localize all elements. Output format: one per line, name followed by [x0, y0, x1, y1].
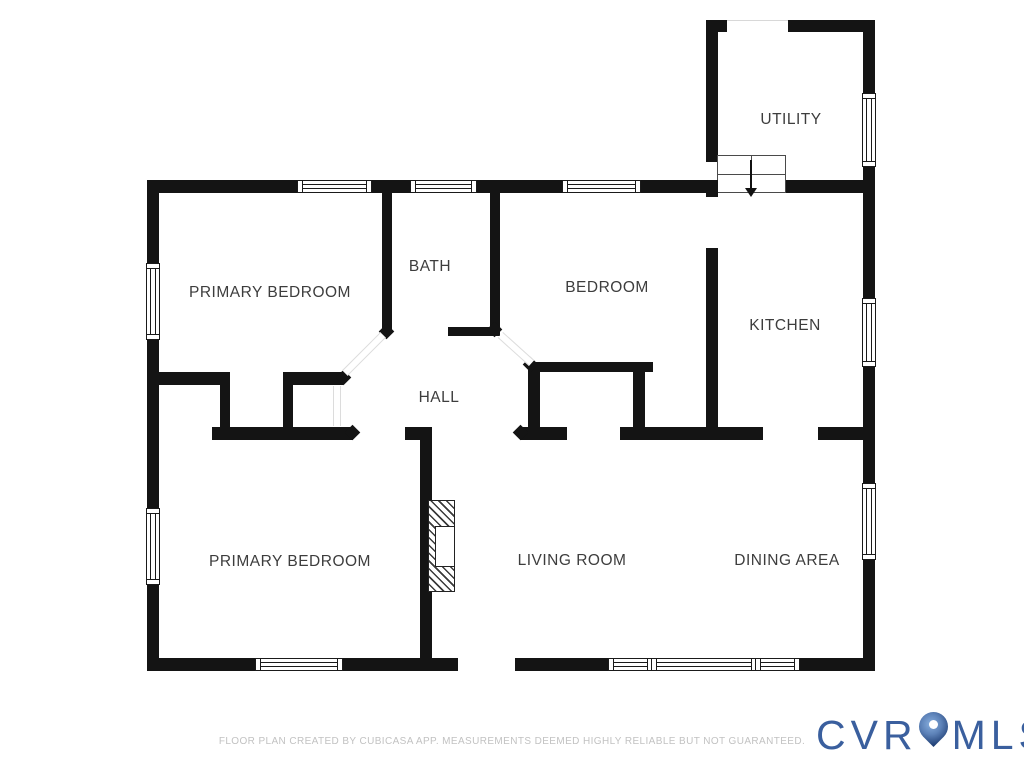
wall	[863, 560, 875, 671]
wall	[633, 362, 645, 428]
wall	[372, 180, 410, 193]
wall	[147, 180, 159, 263]
wall	[515, 658, 608, 671]
window	[297, 180, 372, 193]
map-pin-icon	[918, 710, 950, 758]
wall	[863, 180, 875, 298]
wall	[477, 180, 562, 193]
window	[862, 483, 876, 560]
room-label-hall: HALL	[419, 389, 460, 407]
room-label-primary-bedroom: PRIMARY BEDROOM	[189, 284, 351, 302]
fireplace	[428, 500, 455, 592]
open-passage	[498, 332, 535, 366]
stairs-down-arrow-icon	[750, 160, 752, 188]
room-label-living-room: LIVING ROOM	[518, 552, 627, 570]
open-passage	[342, 332, 386, 376]
room-label-bath: BATH	[409, 258, 451, 276]
wall	[147, 340, 159, 508]
wall	[620, 427, 763, 440]
wall	[343, 658, 458, 671]
room-label-utility: UTILITY	[760, 111, 821, 129]
window	[255, 658, 343, 671]
door-opening	[727, 20, 788, 21]
room-label-kitchen: KITCHEN	[749, 317, 821, 335]
logo-text-left: CVR	[816, 712, 918, 758]
wall	[863, 167, 875, 180]
wall	[706, 180, 718, 197]
wall	[706, 20, 718, 162]
wall	[490, 193, 500, 327]
wall	[212, 427, 353, 440]
room-label-dining-area: DINING AREA	[734, 552, 839, 570]
wall	[786, 180, 875, 193]
logo-text-right: MLS	[952, 712, 1024, 758]
stairs-down-arrow-icon	[745, 188, 757, 197]
window	[862, 298, 876, 367]
window	[651, 658, 757, 671]
wall	[788, 20, 875, 32]
wall	[382, 193, 392, 332]
wall	[147, 658, 255, 671]
firebox	[435, 526, 455, 567]
cvrmls-logo: CVR MLS	[816, 708, 1024, 758]
wall	[818, 427, 863, 440]
open-passage	[333, 386, 341, 426]
wall	[863, 367, 875, 483]
wall	[863, 20, 875, 93]
wall	[147, 180, 297, 193]
window	[146, 263, 160, 340]
window	[608, 658, 653, 671]
room-label-bedroom: BEDROOM	[565, 279, 649, 297]
window	[562, 180, 641, 193]
window	[862, 93, 876, 167]
window	[146, 508, 160, 585]
wall	[706, 248, 718, 437]
room-label-primary-bedroom-2: PRIMARY BEDROOM	[209, 553, 371, 571]
floor-plan-canvas: UTILITY PRIMARY BEDROOM BATH BEDROOM KIT…	[0, 0, 1024, 768]
window	[755, 658, 800, 671]
window	[410, 180, 477, 193]
map-pin-dot	[929, 720, 938, 729]
